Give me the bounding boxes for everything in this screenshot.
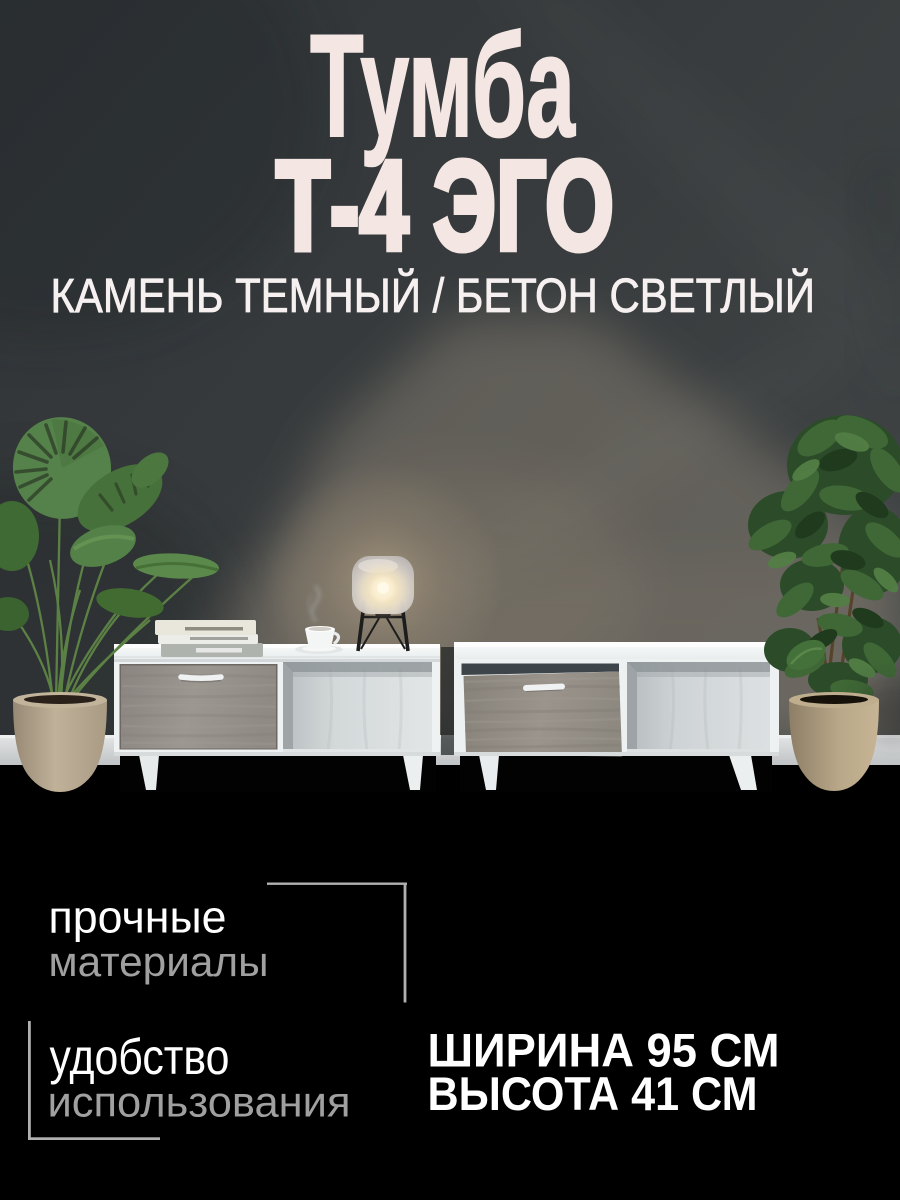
svg-text:материалы: материалы	[49, 938, 269, 985]
svg-text:ВЫСОТА 41 СМ: ВЫСОТА 41 СМ	[428, 1068, 758, 1121]
svg-text:Т-4 ЭГО: Т-4 ЭГО	[276, 135, 614, 277]
svg-text:использования: использования	[48, 1079, 351, 1127]
svg-text:КАМЕНЬ ТЕМНЫЙ / БЕТОН СВЕТЛЫЙ: КАМЕНЬ ТЕМНЫЙ / БЕТОН СВЕТЛЫЙ	[51, 268, 816, 323]
svg-text:прочные: прочные	[49, 892, 227, 943]
svg-text:удобство: удобство	[50, 1029, 230, 1085]
